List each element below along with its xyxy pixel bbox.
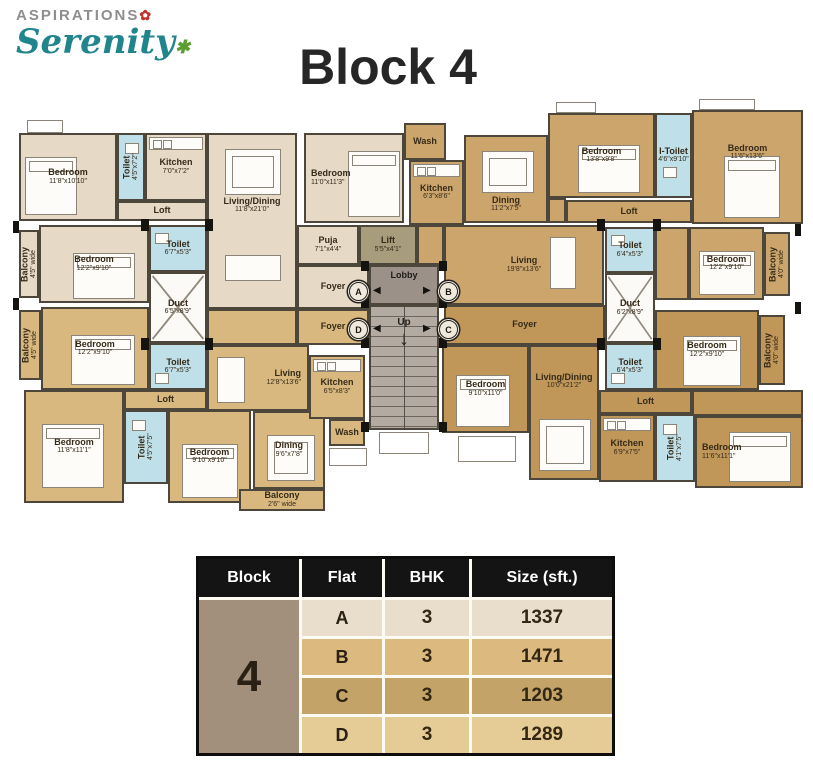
room-b-balcony: Balcony4'0" wide [764,232,790,296]
room-c-foyer: Foyer [444,305,605,345]
room-c-bedroom1: Bedroom9'10"x11'0" [442,345,529,433]
wall-block [13,298,19,310]
flat-b-cell: B [302,639,382,675]
room-d-bedroom2: Bedroom11'8"x11'1" [24,390,124,503]
room-b-wash: Wash [404,123,446,160]
dining-table-icon [539,419,591,471]
room-b-kitchen: Kitchen6'3"x8'6" [409,160,464,225]
wall-block [205,219,213,231]
room-a-toilet1: Toilet4'5"x7'2" [117,133,145,201]
room-c-toilet2: Toilet4'1"x7'5" [655,414,695,482]
hall-area [207,309,297,345]
toilet-fixture-icon [125,143,139,154]
room-lift: Lift5'5"x4'1" [359,225,417,265]
bed-icon [42,424,104,488]
wall-block [205,338,213,350]
room-a-loft: Loft [117,201,207,221]
room-c-kitchen: Kitchen6'9"x7'5" [599,414,655,482]
wall-block [653,338,661,350]
toilet-fixture-icon [155,233,169,244]
parapet [27,120,63,133]
arrow-left-icon: ◀ [373,324,381,334]
room-b-itoilet: I-Toilet4'6"x9'10" [655,113,692,198]
room-a-bedroom3: Bedroom12'2"x9'10" [39,225,149,303]
flat-size-table: Block Flat BHK Size (sft.) 4 A 3 1337 B … [196,556,615,756]
brand-top-line: ASPIRATIONS✿ [16,8,190,23]
bed-icon [73,253,135,299]
room-c-living-dining: Living/Dining10'0"x21'2" [529,345,599,480]
sofa-icon [225,255,281,281]
header-block: Block [199,559,299,597]
block-number-cell: 4 [199,600,299,753]
room-c-balcony: Balcony4'0" wide [759,315,785,385]
dining-table-icon [482,151,534,193]
toilet-fixture-icon [663,167,677,178]
bed-icon [348,151,400,217]
room-d-wash: Wash [329,419,365,446]
flat-d-size: 1289 [472,717,612,753]
flat-c-size: 1203 [472,678,612,714]
flat-d-cell: D [302,717,382,753]
wall-block [141,219,149,231]
flat-a-cell: A [302,600,382,636]
floor-plan: Bedroom11'8"x10'10" Toilet4'5"x7'2" Kitc… [11,98,803,516]
flat-c-cell: C [302,678,382,714]
room-d-loft: Loft [124,390,207,410]
wall-block [361,261,369,271]
wall-block [141,338,149,350]
room-b-bedroom2: Bedroom11'6"x13'6" [692,110,803,224]
parapet [699,99,755,110]
toilet-fixture-icon [611,373,625,384]
room-b-bedroom1: Bedroom13'8"x9'8" [548,113,655,198]
bed-icon [699,251,755,295]
wall-block [439,338,447,348]
kitchen-counter-icon [149,137,203,150]
dining-table-icon [225,149,281,195]
leaf-icon: ✱ [175,37,190,58]
duct-left: Duct6'5"x8'9" [149,272,207,343]
wall-block [361,422,369,432]
hall-area [548,198,566,223]
room-d-balcony1: Balcony4'5" wide [19,310,41,380]
wall-block [597,338,605,350]
porch [329,448,367,466]
wall-block [13,221,19,233]
room-a-puja: Puja7'1"x4'4" [297,225,359,265]
wall-block [361,338,369,348]
wall-block [439,261,447,271]
wall-block [597,219,605,231]
room-d-kitchen: Kitchen6'5"x8'3" [309,355,365,419]
toilet-fixture-icon [663,424,677,435]
toilet-fixture-icon [155,373,169,384]
room-c-bedroom2: Bedroom12'2"x9'10" [655,310,759,390]
header-size: Size (sft.) [472,559,612,597]
toilet-fixture-icon [611,235,625,246]
arrow-right-icon: ▶ [423,324,431,334]
entry-marker-c: C [439,320,458,339]
bed-icon [578,145,640,193]
brand-main-text: Serenity [16,22,175,62]
room-a-bedroom1: Bedroom11'8"x10'10" [19,133,117,221]
hall-area [417,225,444,265]
wall-block [653,219,661,231]
room-c-bedroom3: Bedroom11'6"x11'1" [695,416,803,488]
room-b-dining: Dining11'2"x7'5" [464,135,548,223]
kitchen-counter-icon [313,359,361,372]
flower-icon: ✿ [139,7,151,23]
hall-area [692,390,803,416]
brand-logo: ASPIRATIONS✿ Serenity✱ [16,8,190,59]
flat-d-bhk: 3 [385,717,469,753]
bed-icon [683,336,741,386]
room-a-living-dining: Living/Dining11'8"x21'0" [207,133,297,309]
arrow-right-icon: ▶ [423,286,431,296]
room-d-bedroom1: Bedroom12'2"x9'10" [41,307,149,390]
flat-a-size: 1337 [472,600,612,636]
entry-marker-b: B [439,282,458,301]
room-a-kitchen: Kitchen7'0"x7'2" [145,133,207,201]
room-a-balcony: Balcony4'5" wide [19,230,39,298]
bed-icon [729,432,791,482]
flat-c-bhk: 3 [385,678,469,714]
room-c-toilet1: Toilet6'4"x5'3" [605,343,655,390]
page-title: Block 4 [299,38,477,96]
room-d-living: Living12'8"x13'6" [207,345,309,411]
room-d-toilet1: Toilet6'7"x5'3" [149,343,207,390]
hall-area [655,227,689,300]
porch [379,432,429,454]
flat-b-bhk: 3 [385,639,469,675]
kitchen-counter-icon [603,418,651,431]
duct-right: Duct6'2"x8'9" [605,273,655,343]
room-b-toilet2: Toilet6'4"x5'3" [605,227,655,273]
page: ASPIRATIONS✿ Serenity✱ Block 4 Bedroom11… [0,0,813,768]
header-bhk: BHK [385,559,469,597]
bed-icon [25,157,77,215]
wall-block [795,224,801,236]
room-c-loft: Loft [599,390,692,414]
flat-a-bhk: 3 [385,600,469,636]
bed-icon [71,335,135,385]
kitchen-counter-icon [413,164,460,177]
dining-table-icon [267,435,315,481]
bed-icon [456,375,510,427]
header-flat: Flat [302,559,382,597]
entry-marker-a: A [349,282,368,301]
wall-block [795,302,801,314]
arrow-left-icon: ◀ [373,286,381,296]
room-a-toilet2: Toilet6'7"x5'3" [149,225,207,272]
room-b-bedroom3: Bedroom12'2"x9'10" [689,227,764,300]
room-a-bedroom2: Bedroom11'0"x11'3" [304,133,404,223]
room-d-toilet2: Toilet4'5"x7'5" [124,410,168,484]
flat-b-size: 1471 [472,639,612,675]
room-d-dining: Dining9'6"x7'8" [253,411,325,489]
sofa-icon [217,357,245,403]
room-d-balcony2: Balcony2'6" wide [239,489,325,511]
sofa-icon [550,237,576,289]
entry-marker-d: D [349,320,368,339]
brand-main-line: Serenity✱ [16,25,190,59]
wall-block [439,422,447,432]
room-b-living: Living19'8"x13'6" [444,225,604,305]
porch [458,436,516,462]
toilet-fixture-icon [132,420,146,431]
bed-icon [724,156,780,218]
parapet [556,102,596,113]
room-b-loft: Loft [566,200,692,223]
bed-icon [182,444,238,498]
